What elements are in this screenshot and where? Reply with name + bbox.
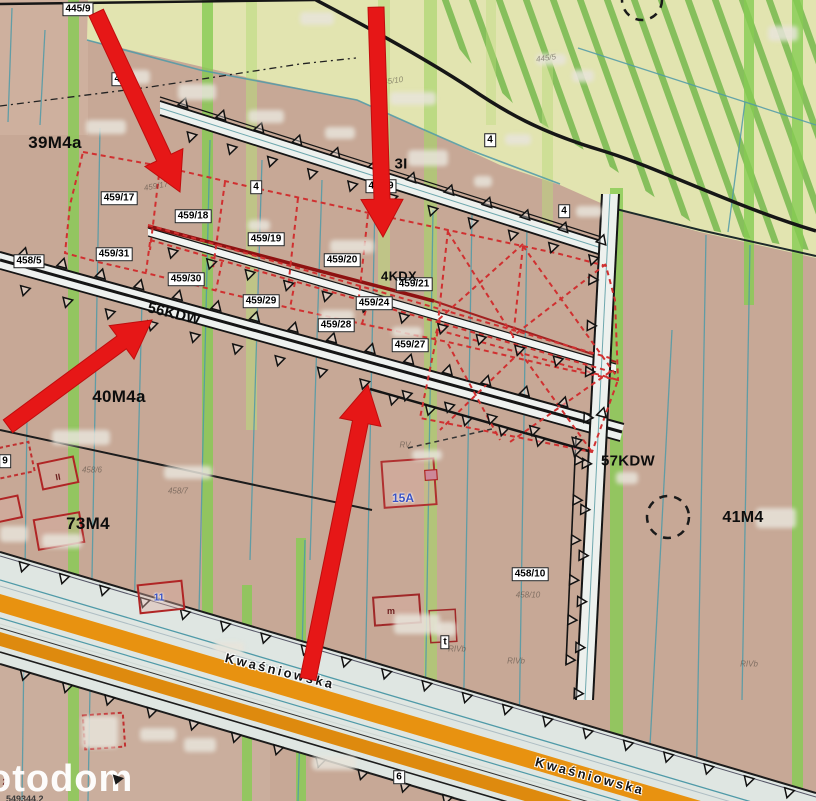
map-canvas: 445/945459/17459/18459/19459/20459/21459…: [0, 0, 816, 801]
arrow-to-459-27: [300, 385, 381, 681]
arrow-to-459-18: [89, 9, 183, 192]
annotation-arrows: [0, 0, 816, 801]
arrow-to-459-20: [361, 7, 403, 237]
arrow-to-56KDW: [3, 320, 152, 433]
coordinate-text: 549344,2: [6, 794, 44, 801]
